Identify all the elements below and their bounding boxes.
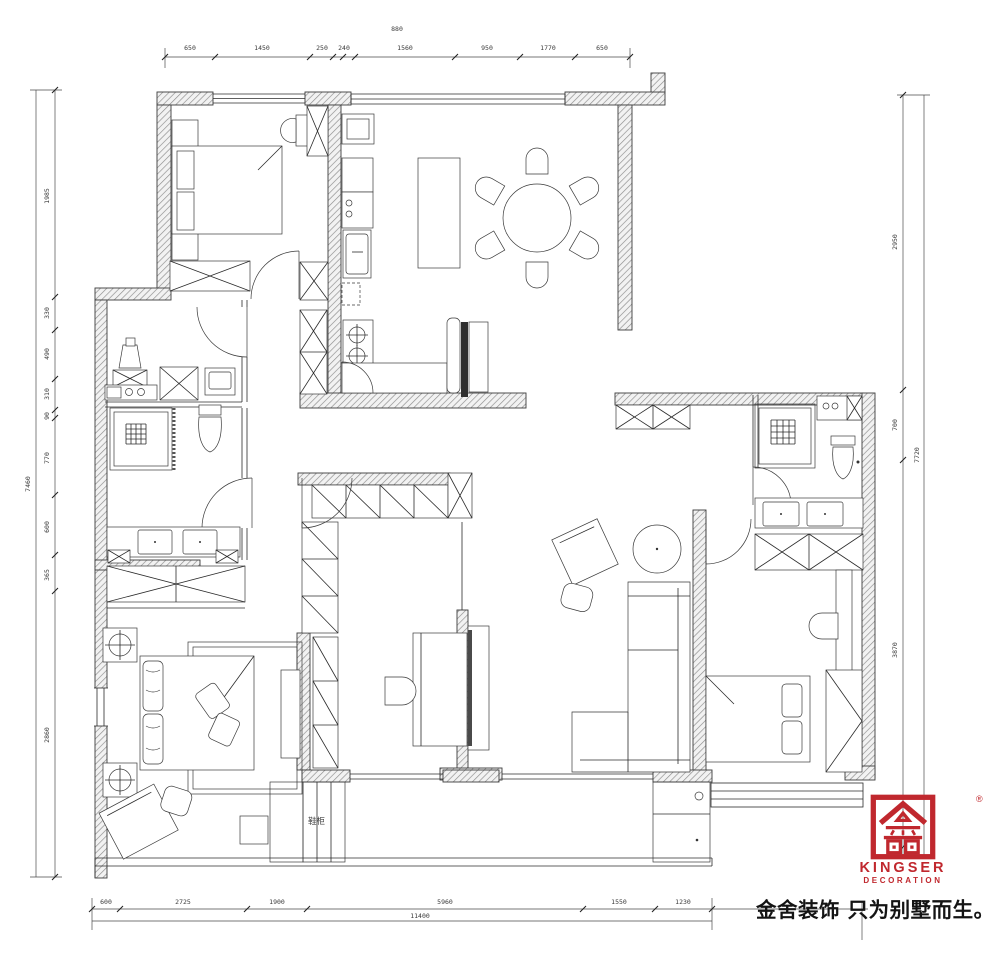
vanity-double	[107, 527, 240, 563]
dim-label: 2725	[175, 898, 191, 906]
balcony-cabinet: 鞋柜	[303, 782, 345, 862]
dim-label: 2950	[891, 234, 899, 250]
door-laundry	[197, 307, 247, 357]
counter	[342, 192, 373, 228]
shower	[755, 404, 815, 468]
cabinet	[307, 106, 328, 156]
kingser-logo-icon: ®	[870, 794, 936, 860]
dimension-top: 880 650 1450 250 240 1560 950 1770 650	[162, 25, 633, 68]
nightstand	[172, 233, 198, 260]
bed-double	[140, 656, 254, 770]
dim-label: 880	[391, 25, 403, 33]
bed-single	[706, 676, 810, 762]
wardrobe	[170, 261, 250, 291]
nightstand-lamp	[103, 763, 137, 797]
door-shower	[202, 478, 252, 528]
dim-label: 7460	[24, 476, 32, 492]
dim-label: 1770	[540, 44, 556, 52]
dim-label: 600	[100, 898, 112, 906]
registered-mark: ®	[976, 794, 983, 804]
desk-chair	[385, 677, 416, 705]
dim-label: 330	[43, 307, 51, 319]
desk	[413, 633, 467, 746]
balcony-cabinet-label: 鞋柜	[308, 816, 326, 827]
brand-subtitle: DECORATION	[828, 875, 978, 886]
floor-plan-page: 880 650 1450 250 240 1560 950 1770 650 1…	[0, 0, 1000, 960]
laundry-sink	[105, 385, 157, 400]
desk	[836, 570, 852, 672]
dim-label: 365	[43, 569, 51, 581]
toilet	[831, 436, 860, 479]
dim-label: 310	[43, 388, 51, 400]
dim-label: 490	[43, 348, 51, 360]
dim-label: 700	[891, 419, 899, 431]
hall-cabinet-row	[616, 405, 690, 429]
dim-label: 1550	[611, 898, 627, 906]
dim-label: 1450	[254, 44, 270, 52]
brand-slogan: 金舍装饰 只为别墅而生。	[756, 893, 996, 923]
hall-cabinets	[300, 262, 328, 394]
ottoman	[559, 582, 594, 614]
dim-label: 240	[338, 44, 350, 52]
dim-label: 1230	[675, 898, 691, 906]
island-counter	[418, 158, 460, 268]
dim-label: 7720	[913, 447, 921, 463]
sofa	[572, 582, 690, 772]
tv-unit	[468, 626, 489, 750]
side-table	[633, 525, 681, 573]
washer	[113, 370, 147, 387]
dim-label: 2860	[43, 727, 51, 743]
wardrobe	[107, 566, 245, 608]
dishwasher	[342, 283, 360, 305]
side-cabinet	[281, 670, 300, 758]
dim-label: 1900	[269, 898, 285, 906]
dim-label: 250	[316, 44, 328, 52]
toilet	[281, 115, 309, 146]
kitchen-sink	[343, 230, 371, 278]
dim-label: 600	[43, 521, 51, 533]
dim-label: 3870	[891, 642, 899, 658]
room-living	[552, 519, 690, 772]
dim-label: 1985	[43, 188, 51, 204]
desk-chair	[809, 613, 838, 639]
dimension-bottom: 600 2725 1900 5960 1550 1230 11400	[89, 898, 868, 940]
door-bedroom-right	[706, 519, 751, 564]
balcony-door-panel	[653, 782, 710, 862]
room-bedroom-second	[99, 566, 302, 859]
vanity-double	[755, 498, 863, 528]
entry-console	[447, 318, 488, 397]
water-heater	[119, 345, 141, 368]
brand-name: KINGSER	[828, 862, 978, 875]
dim-label: 770	[43, 452, 51, 464]
brand-logo: ® KINGSER DECORATION	[828, 788, 978, 886]
toilet	[199, 405, 222, 452]
counter	[341, 363, 447, 393]
room-balcony: 鞋柜	[240, 782, 710, 862]
small-table	[240, 816, 268, 844]
shower	[110, 408, 174, 470]
room-dining	[471, 148, 603, 288]
bath-counter	[817, 396, 862, 420]
room-laundry	[105, 307, 247, 400]
dimension-right: 2950 700 3870 7720	[891, 92, 930, 858]
cabinet-row	[755, 534, 863, 570]
dim-label: 5960	[437, 898, 453, 906]
dim-label: 950	[481, 44, 493, 52]
dim-label: 650	[596, 44, 608, 52]
cabinet	[160, 367, 198, 400]
corner-unit	[826, 670, 862, 772]
door-master	[251, 251, 299, 299]
nightstand-lamp	[103, 628, 137, 662]
bed-master	[172, 146, 282, 234]
room-shower	[107, 405, 252, 563]
room-kitchen	[341, 114, 488, 397]
vanity-sink	[205, 368, 235, 395]
cabinet	[342, 158, 373, 192]
dim-label: 650	[184, 44, 196, 52]
dining-table	[503, 184, 571, 252]
stove	[343, 320, 373, 367]
dim-label: 1560	[397, 44, 413, 52]
dimension-left: 1985 330 490 310 90 770 600 365 2860 746…	[24, 87, 62, 880]
dim-label: 90	[43, 412, 51, 420]
lounge-chair	[552, 519, 618, 585]
nightstand	[172, 120, 198, 147]
dim-label: 11400	[410, 912, 430, 920]
